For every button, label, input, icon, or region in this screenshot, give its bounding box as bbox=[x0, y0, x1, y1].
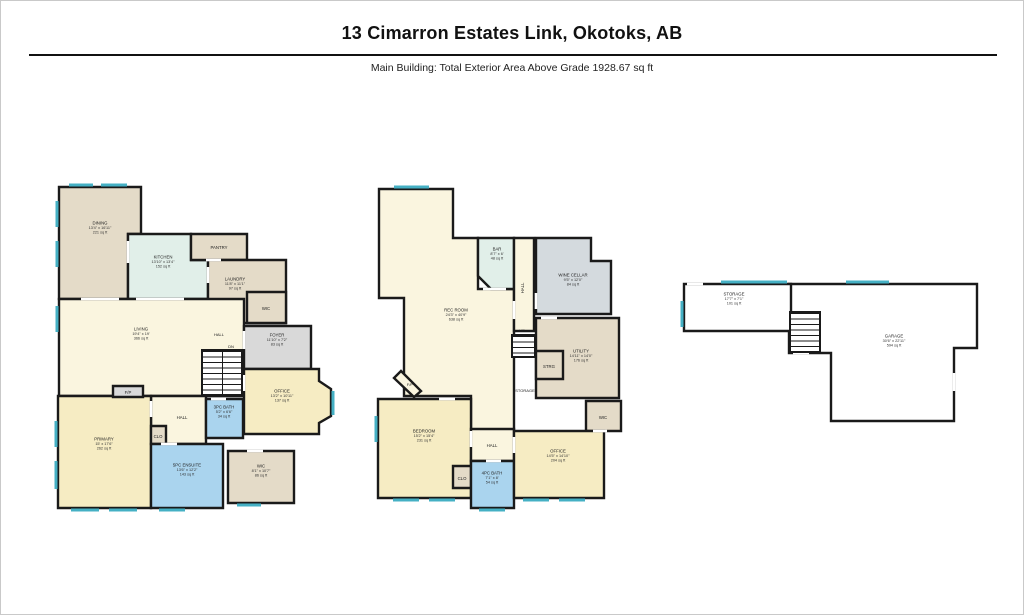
room-laundry-area: 97 sq ft bbox=[229, 287, 242, 291]
label-storage_lbl: STORAGE bbox=[515, 388, 535, 393]
room-wic-label: WIC bbox=[599, 415, 607, 420]
room-clo-name: CLO bbox=[154, 434, 163, 439]
room-wic_upper-name: WIC bbox=[262, 306, 270, 311]
room-hall_strip-label: HALL bbox=[520, 282, 525, 293]
room-fp-name: F/P bbox=[125, 390, 132, 395]
room-wine-area: 84 sq ft bbox=[567, 283, 580, 287]
room-bedroom-dims: 15'2" x 15'4" bbox=[414, 434, 435, 438]
room-wic_lower-area: 86 sq ft bbox=[255, 474, 268, 478]
room-bedroom-name: BEDROOM bbox=[413, 428, 436, 433]
room-wic_lower-name: WIC bbox=[257, 463, 265, 468]
room-living-label: LIVING19'4" x 19'366 sq ft bbox=[132, 326, 150, 340]
room-office-dims: 14'5" x 14'10" bbox=[547, 454, 571, 458]
floorplan-page: 13 Cimarron Estates Link, Okotoks, AB Ma… bbox=[0, 0, 1024, 615]
room-storage-name: STORAGE bbox=[724, 291, 745, 296]
room-hall2-label: HALL bbox=[487, 443, 498, 448]
label-storage_lbl-text: STORAGE bbox=[515, 388, 535, 393]
room-primary-dims: 15' x 17'6" bbox=[95, 442, 113, 446]
room-bath4-name: 4PC BATH bbox=[482, 470, 503, 475]
room-primary-shape bbox=[58, 396, 151, 508]
room-utility-name: UTILITY bbox=[573, 348, 589, 353]
room-garage-dims: 30'6" x 22'11" bbox=[883, 339, 906, 343]
room-hall_small-name: HALL bbox=[177, 415, 188, 420]
room-wic-name: WIC bbox=[599, 415, 607, 420]
label-fp: F/P bbox=[407, 382, 414, 387]
room-primary-name: PRIMARY bbox=[94, 436, 114, 441]
room-living-name: LIVING bbox=[134, 326, 149, 331]
room-wic_upper-label: WIC bbox=[262, 306, 270, 311]
room-dining-area: 221 sq ft bbox=[93, 231, 109, 235]
room-bar-dims: 8'7" x 6' bbox=[490, 252, 503, 256]
room-bath4-dims: 7'1" x 8' bbox=[485, 476, 498, 480]
room-pantry-label: PANTRY bbox=[210, 245, 227, 250]
label-fp-text: F/P bbox=[407, 382, 414, 387]
room-wine-name: WINE CELLAR bbox=[558, 272, 587, 277]
room-rec-area: 638 sq ft bbox=[449, 318, 465, 322]
stairs-garage bbox=[789, 311, 821, 353]
room-ensuite-area: 143 sq ft bbox=[180, 473, 196, 477]
room-dining-name: DINING bbox=[92, 220, 108, 225]
room-ensuite-name: 5PC ENSUITE bbox=[173, 462, 201, 467]
stairs-basement bbox=[511, 334, 536, 358]
room-primary-label: PRIMARY15' x 17'6"262 sq ft bbox=[94, 436, 114, 450]
room-bar-name: BAR bbox=[493, 246, 502, 251]
label-hall_upper-text: HALL bbox=[214, 332, 225, 337]
room-bath3-dims: 5'2" x 6'6" bbox=[216, 410, 233, 414]
room-utility-area: 176 sq ft bbox=[574, 359, 590, 363]
room-foyer-area: 83 sq ft bbox=[271, 343, 284, 347]
room-living-dims: 19'4" x 19' bbox=[132, 332, 150, 336]
room-kitchen-dims: 13'10" x 13'4" bbox=[152, 260, 176, 264]
room-laundry-dims: 11'8" x 11'1" bbox=[225, 282, 246, 286]
room-bath3-name: 3PC BATH bbox=[214, 404, 235, 409]
label-hall_upper: HALL bbox=[214, 332, 225, 337]
room-strg-name: STRG bbox=[543, 364, 556, 369]
label-up: UP bbox=[519, 328, 525, 333]
room-rec-name: REC ROOM bbox=[444, 307, 468, 312]
room-office-name: OFFICE bbox=[550, 448, 566, 453]
room-fp-label: F/P bbox=[125, 390, 132, 395]
room-kitchen-area: 152 sq ft bbox=[156, 265, 172, 269]
room-utility-dims: 14'11" x 14'0" bbox=[570, 354, 593, 358]
floorplan-basement: REC ROOM24'3" x 40'9"638 sq ftBAR8'7" x … bbox=[376, 187, 621, 510]
room-rec-dims: 24'3" x 40'9" bbox=[446, 313, 467, 317]
room-hall2-name: HALL bbox=[487, 443, 498, 448]
room-wine-dims: 9'5" x 12'0" bbox=[564, 278, 583, 282]
room-kitchen-name: KITCHEN bbox=[154, 254, 173, 259]
room-wic_lower-dims: 8'1" x 10'7" bbox=[252, 469, 271, 473]
room-storage-dims: 17'7" x 7'1" bbox=[725, 297, 744, 301]
room-foyer-name: FOYER bbox=[270, 332, 285, 337]
room-ensuite-dims: 13'6" x 12'2" bbox=[177, 468, 198, 472]
room-office-name: OFFICE bbox=[274, 388, 290, 393]
floorplan-main: DINING13'4" x 16'11"221 sq ftKITCHEN13'1… bbox=[56, 185, 333, 510]
room-hall_strip-name: HALL bbox=[520, 282, 525, 293]
room-bath3-area: 34 sq ft bbox=[218, 415, 231, 419]
room-bedroom-area: 231 sq ft bbox=[417, 439, 433, 443]
room-clo-label: CLO bbox=[154, 434, 163, 439]
stairs-rail bbox=[222, 351, 223, 394]
room-clo-name: CLO bbox=[458, 476, 467, 481]
label-up-text: UP bbox=[519, 328, 525, 333]
room-dining-dims: 13'4" x 16'11" bbox=[89, 226, 112, 230]
room-office-shape bbox=[514, 431, 604, 498]
stairs-main bbox=[201, 349, 243, 396]
floorplans-canvas: DINING13'4" x 16'11"221 sq ftKITCHEN13'1… bbox=[1, 1, 1024, 615]
room-primary-area: 262 sq ft bbox=[97, 447, 113, 451]
room-laundry-name: LAUNDRY bbox=[225, 276, 246, 281]
room-office-dims: 13'2" x 10'11" bbox=[271, 394, 294, 398]
room-foyer-dims: 11'10" x 7'2" bbox=[267, 338, 288, 342]
room-clo-label: CLO bbox=[458, 476, 467, 481]
room-hall_small-label: HALL bbox=[177, 415, 188, 420]
room-garage-area: 594 sq ft bbox=[887, 344, 903, 348]
room-office-area: 204 sq ft bbox=[551, 459, 567, 463]
room-garage-name: GARAGE bbox=[885, 333, 904, 338]
room-bath4-area: 54 sq ft bbox=[486, 481, 499, 485]
room-bar-area: 48 sq ft bbox=[491, 257, 504, 261]
floorplan-garage: GARAGE30'6" x 22'11"594 sq ftSTORAGE17'7… bbox=[682, 282, 977, 421]
room-strg-label: STRG bbox=[543, 364, 556, 369]
room-living-area: 366 sq ft bbox=[134, 337, 150, 341]
room-storage-area: 101 sq ft bbox=[727, 302, 743, 306]
room-pantry-name: PANTRY bbox=[210, 245, 227, 250]
room-office-area: 137 sq ft bbox=[275, 399, 291, 403]
